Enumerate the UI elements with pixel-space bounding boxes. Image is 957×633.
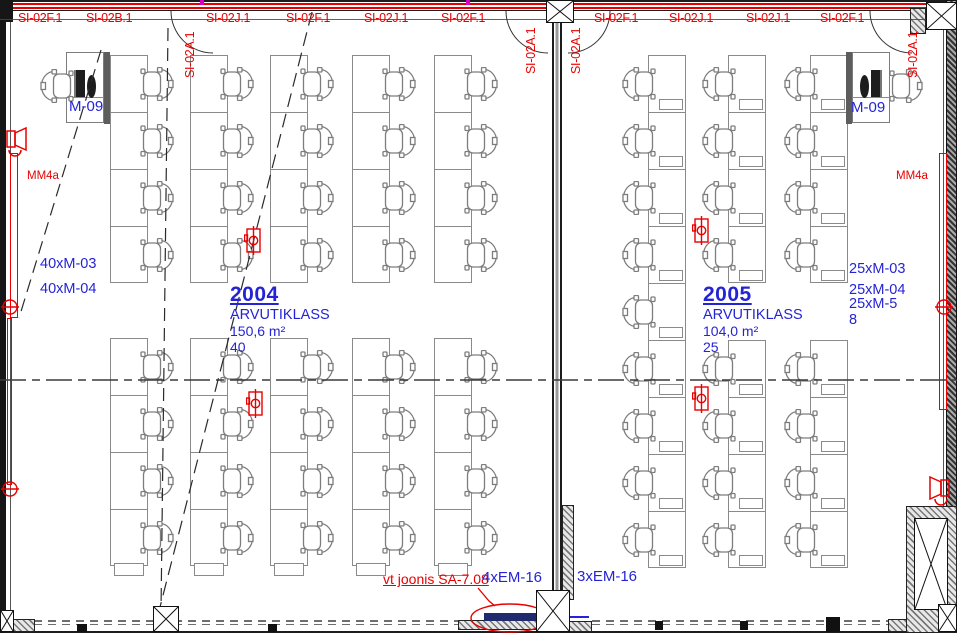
computer-icon xyxy=(659,555,683,566)
desk-divider xyxy=(352,226,390,227)
chair-icon xyxy=(464,407,498,441)
floor-socket-icon xyxy=(244,226,264,256)
desk-divider xyxy=(110,395,148,396)
desk-endcap xyxy=(356,563,386,576)
chair-icon xyxy=(382,238,416,272)
chair-icon xyxy=(300,521,334,555)
chair-icon xyxy=(622,181,656,215)
chair-icon xyxy=(622,295,656,329)
room-seats: 25 xyxy=(703,339,803,355)
chair-icon xyxy=(784,124,818,158)
chair-icon xyxy=(220,67,254,101)
reference-note-label: vt joonis SA-7.08 xyxy=(383,571,489,587)
grid-axis-label-vertical: SI-02A.1 xyxy=(569,12,583,74)
room-name: ARVUTIKLASS xyxy=(703,307,803,323)
desk-divider xyxy=(434,452,472,453)
chair-icon xyxy=(784,409,818,443)
desk-divider xyxy=(648,283,686,284)
computer-icon xyxy=(659,327,683,338)
chair-icon xyxy=(622,124,656,158)
desk-divider xyxy=(810,454,848,455)
desk-divider xyxy=(728,454,766,455)
desk-divider xyxy=(728,169,766,170)
desk-divider xyxy=(810,226,848,227)
grid-axis-label: SI-02B.1 xyxy=(86,11,132,25)
chair-icon xyxy=(784,352,818,386)
computer-monitor-icon xyxy=(860,75,869,98)
wall-center-partition xyxy=(552,11,562,592)
wall-stub-2004 xyxy=(104,52,110,124)
chair-icon xyxy=(464,521,498,555)
wall-bottom-hatch-2 xyxy=(458,620,540,630)
chair-icon xyxy=(140,350,174,384)
teacher-desk-divider xyxy=(852,97,890,98)
wall-top-outer xyxy=(0,0,957,2)
door-jamb xyxy=(740,621,748,630)
desk-divider xyxy=(434,226,472,227)
chair-icon xyxy=(220,181,254,215)
door-jamb xyxy=(77,624,87,632)
desk-divider xyxy=(810,169,848,170)
desk-divider xyxy=(434,169,472,170)
computer-icon xyxy=(659,384,683,395)
desk-divider xyxy=(728,511,766,512)
computer-icon xyxy=(821,555,845,566)
chair-icon xyxy=(702,67,736,101)
equipment-label: 25xM-5 xyxy=(849,296,897,312)
desk-divider xyxy=(352,452,390,453)
desk-divider xyxy=(810,511,848,512)
desk-divider xyxy=(110,169,148,170)
column xyxy=(153,606,179,632)
column xyxy=(536,590,570,632)
chair-icon xyxy=(622,238,656,272)
chair-icon xyxy=(140,521,174,555)
door-jamb xyxy=(826,617,840,632)
desk-divider xyxy=(352,112,390,113)
computer-icon xyxy=(739,156,763,167)
desk-divider xyxy=(352,395,390,396)
wall-top-red-line-2 xyxy=(0,7,957,9)
chair-icon xyxy=(382,521,416,555)
chair-icon xyxy=(220,124,254,158)
floor-socket-icon xyxy=(246,389,266,419)
desk-divider xyxy=(728,226,766,227)
grid-axis-label: SI-02F.1 xyxy=(286,11,330,25)
leader-line xyxy=(478,588,495,606)
desk-divider xyxy=(270,509,308,510)
floor-socket-icon xyxy=(692,216,712,246)
door-jamb xyxy=(268,624,277,632)
computer-icon xyxy=(739,213,763,224)
desk-divider xyxy=(190,395,228,396)
computer-icon xyxy=(739,99,763,110)
computer-icon xyxy=(821,99,845,110)
chair-icon xyxy=(382,464,416,498)
chair-icon xyxy=(382,67,416,101)
chair-icon xyxy=(702,466,736,500)
desk-divider xyxy=(434,112,472,113)
computer-icon xyxy=(821,498,845,509)
chair-icon xyxy=(140,464,174,498)
grid-axis-label: SI-02F.1 xyxy=(18,11,62,25)
room-number: 2004 xyxy=(230,283,330,307)
computer-icon xyxy=(659,441,683,452)
desk-divider xyxy=(810,397,848,398)
chair-icon xyxy=(784,181,818,215)
chair-icon xyxy=(464,181,498,215)
chair-icon xyxy=(464,464,498,498)
computer-tower-icon xyxy=(74,70,85,97)
wall-device-label: MM4a xyxy=(896,170,928,182)
projection-screen-icon xyxy=(939,153,947,410)
desk-divider xyxy=(190,226,228,227)
grid-axis-label: SI-02J.1 xyxy=(669,11,713,25)
room-label-2005: 2005 ARVUTIKLASS 104,0 m² 25 xyxy=(703,283,803,355)
desk-divider xyxy=(810,112,848,113)
computer-icon xyxy=(659,213,683,224)
chair-icon xyxy=(300,124,334,158)
desk-divider xyxy=(270,395,308,396)
desk-divider xyxy=(110,452,148,453)
grid-axis-label-vertical: SI-02A.1 xyxy=(906,16,920,78)
chair-icon xyxy=(784,67,818,101)
desk-endcap xyxy=(194,563,224,576)
computer-icon xyxy=(739,555,763,566)
teacher-station-label: M-09 xyxy=(851,99,885,116)
equipment-label: 25xM-03 xyxy=(849,261,905,277)
chair-icon xyxy=(622,523,656,557)
room-number: 2005 xyxy=(703,283,803,307)
column xyxy=(926,2,957,30)
desk-divider xyxy=(648,511,686,512)
wall-bottom-line xyxy=(0,631,957,633)
chair-icon xyxy=(382,124,416,158)
wall-center-furring xyxy=(562,505,574,600)
desk-divider xyxy=(352,169,390,170)
room-area: 150,6 m² xyxy=(230,323,330,339)
teacher-station-label: M-09 xyxy=(69,98,103,115)
desk-divider xyxy=(728,112,766,113)
chair-icon xyxy=(784,523,818,557)
chair-icon xyxy=(464,124,498,158)
desk-endcap xyxy=(114,563,144,576)
column xyxy=(914,518,948,610)
computer-icon xyxy=(821,270,845,281)
computer-icon xyxy=(739,498,763,509)
chair-icon xyxy=(702,181,736,215)
desk-divider xyxy=(190,452,228,453)
room-seats: 40 xyxy=(230,339,330,355)
chair-icon xyxy=(382,181,416,215)
chair-icon xyxy=(702,124,736,158)
desk-divider xyxy=(648,112,686,113)
chair-icon xyxy=(220,464,254,498)
grid-axis-label: SI-02J.1 xyxy=(746,11,790,25)
computer-icon xyxy=(739,441,763,452)
computer-icon xyxy=(821,441,845,452)
desk-divider xyxy=(434,395,472,396)
computer-icon xyxy=(659,270,683,281)
chair-icon xyxy=(784,238,818,272)
chair-icon xyxy=(300,181,334,215)
chair-icon xyxy=(300,464,334,498)
wall-top-red-line-1 xyxy=(0,3,957,5)
chair-icon xyxy=(140,238,174,272)
door-jamb xyxy=(655,621,663,630)
projection-screen-icon xyxy=(10,153,18,318)
computer-icon xyxy=(659,498,683,509)
computer-icon xyxy=(739,270,763,281)
grid-axis-label: SI-02F.1 xyxy=(594,11,638,25)
desk-divider xyxy=(270,226,308,227)
chair-icon xyxy=(622,466,656,500)
desk-divider xyxy=(190,509,228,510)
room-area: 104,0 m² xyxy=(703,323,803,339)
computer-icon xyxy=(739,384,763,395)
floor-socket-icon xyxy=(692,384,712,414)
chair-icon xyxy=(140,181,174,215)
desk-divider xyxy=(728,397,766,398)
desk-divider xyxy=(352,509,390,510)
chair-icon xyxy=(300,407,334,441)
computer-monitor-icon xyxy=(87,75,96,98)
chair-icon xyxy=(464,350,498,384)
chair-icon xyxy=(140,67,174,101)
cable-tray-em16 xyxy=(484,613,538,621)
room-name: ARVUTIKLASS xyxy=(230,307,330,323)
grid-axis-label-vertical: SI-02A.1 xyxy=(524,12,538,74)
chair-icon xyxy=(382,407,416,441)
chair-icon xyxy=(464,67,498,101)
computer-icon xyxy=(821,156,845,167)
desk-divider xyxy=(648,397,686,398)
em-count-label-left: 4xEM-16 xyxy=(482,569,542,586)
grid-axis-label-vertical: SI-02A.1 xyxy=(183,16,197,78)
desk-divider xyxy=(110,112,148,113)
computer-icon xyxy=(659,156,683,167)
desk-divider xyxy=(190,112,228,113)
desk-endcap xyxy=(274,563,304,576)
projection-screen-icon xyxy=(7,318,12,485)
desk-divider xyxy=(434,509,472,510)
column xyxy=(938,604,957,632)
chair-icon xyxy=(622,67,656,101)
chair-icon xyxy=(622,352,656,386)
wall-bottom-hatch-1 xyxy=(13,619,35,632)
chair-icon xyxy=(300,238,334,272)
desk-divider xyxy=(648,226,686,227)
chair-icon xyxy=(140,124,174,158)
desk-divider xyxy=(190,169,228,170)
chair-icon xyxy=(464,238,498,272)
computer-icon xyxy=(821,384,845,395)
desk-divider xyxy=(110,509,148,510)
computer-icon xyxy=(821,213,845,224)
wall-left xyxy=(0,0,6,633)
chair-icon xyxy=(622,409,656,443)
grid-axis-label: SI-02F.1 xyxy=(820,11,864,25)
chair-icon xyxy=(784,466,818,500)
desk-divider xyxy=(270,112,308,113)
equipment-label: 40xM-04 xyxy=(40,281,96,297)
grid-axis-label: SI-02J.1 xyxy=(206,11,250,25)
column xyxy=(0,610,14,632)
grid-axis-label: SI-02J.1 xyxy=(364,11,408,25)
floor-plan-drawing: 2004 ARVUTIKLASS 150,6 m² 40 2005 ARVUTI… xyxy=(0,0,957,633)
room-label-2004: 2004 ARVUTIKLASS 150,6 m² 40 xyxy=(230,283,330,355)
computer-tower-icon xyxy=(871,70,882,97)
chair-icon xyxy=(140,407,174,441)
desk-divider xyxy=(270,169,308,170)
grid-axis-label: SI-02F.1 xyxy=(441,11,485,25)
desk-divider xyxy=(648,454,686,455)
desk-divider xyxy=(648,340,686,341)
chair-icon xyxy=(702,523,736,557)
chair-icon xyxy=(300,67,334,101)
desk-divider xyxy=(270,452,308,453)
wall-bottom-dashed-1a xyxy=(20,620,458,622)
chair-icon xyxy=(702,352,736,386)
wall-device-label: MM4a xyxy=(27,170,59,182)
desk-divider xyxy=(648,169,686,170)
chair-icon xyxy=(382,350,416,384)
computer-icon xyxy=(659,99,683,110)
equipment-label: 8 xyxy=(849,312,857,328)
equipment-label: 40xM-03 xyxy=(40,256,96,272)
em-count-label-right: 3xEM-16 xyxy=(577,568,637,585)
chair-icon xyxy=(220,521,254,555)
desk-divider xyxy=(110,226,148,227)
